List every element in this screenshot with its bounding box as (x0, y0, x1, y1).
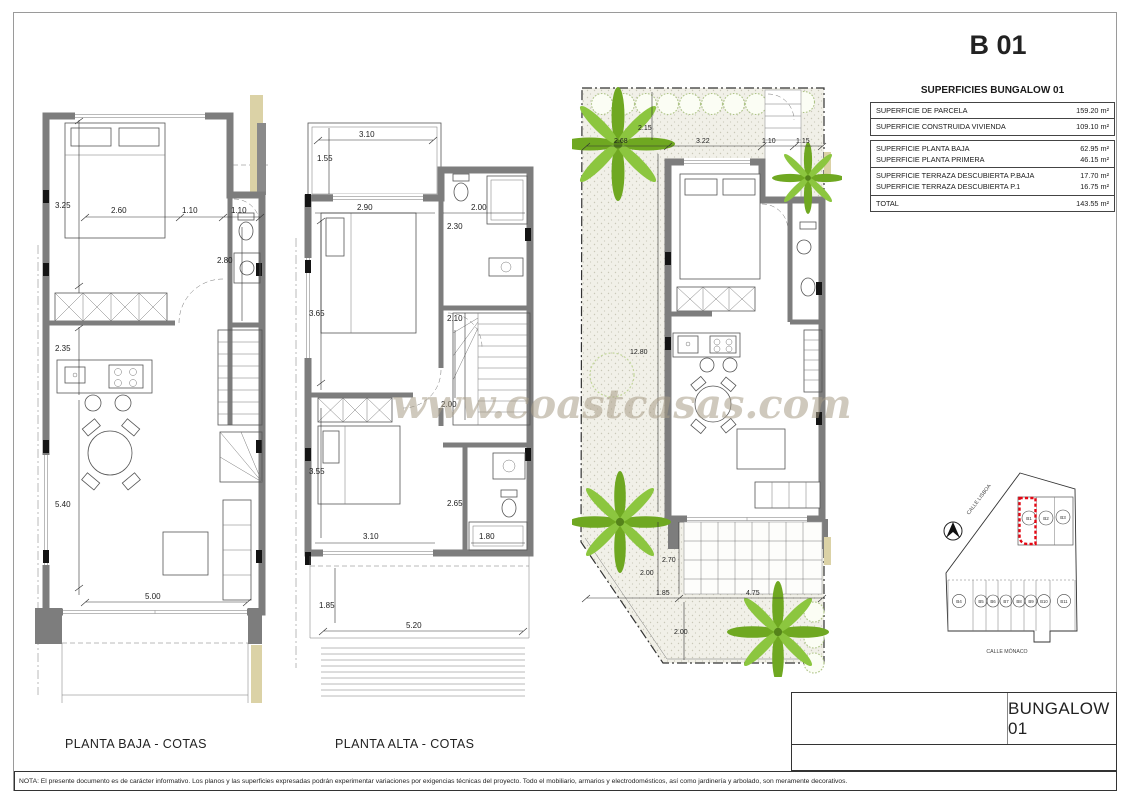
dim-label: 2.65 (447, 499, 463, 508)
dim-label: 1.10 (182, 206, 198, 215)
dim-label: 3.25 (55, 201, 71, 210)
row-value: 62.95 m² (1080, 143, 1109, 154)
lot-label: B10 (1040, 599, 1048, 604)
lot-label: B8 (1016, 599, 1022, 604)
pergola-louvres (321, 648, 525, 696)
dim-label: 2.35 (55, 344, 71, 353)
lot-label: B1 (1026, 516, 1032, 521)
row-label: SUPERFICIE PLANTA PRIMERA (876, 154, 985, 165)
table-row: SUPERFICIE CONSTRUIDA VIVIENDA109.10 m² (870, 118, 1115, 135)
dim-label: 1.85 (319, 601, 335, 610)
dim-label: 5.00 (145, 592, 161, 601)
table-row-group: SUPERFICIE TERRAZA DESCUBIERTA P.BAJA17.… (870, 167, 1115, 196)
site-key-plan: CALLE LISBOA B1 B2 B3 B4 (933, 443, 1118, 678)
row-value: 143.55 m² (1076, 198, 1109, 209)
drawing-sheet: 3.25 2.60 1.10 1.10 2.80 2.35 5.40 5.00 … (0, 0, 1131, 800)
plan-label-planta-baja: PLANTA BAJA - COTAS (65, 737, 207, 751)
dim-label: 3.10 (359, 130, 375, 139)
dim-label: 5.40 (55, 500, 71, 509)
row-value: 17.70 m² (1080, 170, 1109, 181)
row-value: 16.75 m² (1080, 181, 1109, 192)
floor-plan-planta-baja: 3.25 2.60 1.10 1.10 2.80 2.35 5.40 5.00 (35, 95, 270, 707)
table-row: SUPERFICIE DE PARCELA159.20 m² (870, 102, 1115, 119)
areas-table: SUPERFICIES BUNGALOW 01 SUPERFICIE DE PA… (870, 85, 1115, 212)
dim-label: 2.68 (614, 138, 628, 145)
dim-label: 2.00 (674, 629, 688, 636)
row-value: 159.20 m² (1076, 105, 1109, 116)
dim-label: 2.80 (217, 256, 233, 265)
street-label-top: CALLE LISBOA (966, 483, 993, 516)
areas-table-title: SUPERFICIES BUNGALOW 01 (870, 85, 1115, 96)
lot-label: B9 (1028, 599, 1034, 604)
dim-label: 3.10 (363, 532, 379, 541)
dim-label: 5.20 (406, 621, 422, 630)
row-value: 46.15 m² (1080, 154, 1109, 165)
title-block-logo-cell (792, 693, 1008, 744)
dim-label: 2.00 (471, 203, 487, 212)
dim-label: 1.10 (762, 138, 776, 145)
dim-label: 2.70 (662, 557, 676, 564)
dim-label: 12.80 (630, 349, 648, 356)
site-boundary (946, 473, 1077, 642)
row-value: 109.10 m² (1076, 121, 1109, 132)
dim-label: 3.55 (309, 467, 325, 476)
dim-label: 1.80 (479, 532, 495, 541)
dim-label: 2.60 (111, 206, 127, 215)
dim-label: 3.65 (309, 309, 325, 318)
row-label: SUPERFICIE CONSTRUIDA VIVIENDA (876, 121, 1006, 132)
street-label-bottom: CALLE MÓNACO (986, 648, 1027, 655)
disclaimer-note: NOTA: El presente documento es de caráct… (14, 771, 1117, 791)
bed-2 (318, 426, 400, 504)
lot-label: B11 (1060, 599, 1068, 604)
bed-1 (321, 213, 416, 333)
north-arrow-icon (944, 522, 962, 540)
dim-label: 2.90 (357, 203, 373, 212)
row-label: SUPERFICIE TERRAZA DESCUBIERTA P.1 (876, 181, 1020, 192)
sheet-code: B 01 (938, 30, 1058, 61)
bed (65, 123, 165, 238)
row-label: SUPERFICIE TERRAZA DESCUBIERTA P.BAJA (876, 170, 1034, 181)
dim-label: 1.15 (796, 138, 810, 145)
terrace-tiles (668, 519, 828, 594)
table-row-total: TOTAL143.55 m² (870, 195, 1115, 212)
bed (680, 174, 760, 279)
neighbour-wall (824, 537, 831, 565)
table-row-group: SUPERFICIE PLANTA BAJA62.95 m² SUPERFICI… (870, 140, 1115, 169)
dim-label: 4.75 (746, 590, 760, 597)
row-label: SUPERFICIE DE PARCELA (876, 105, 968, 116)
dim-label: 2.10 (447, 314, 463, 323)
sofa (223, 500, 251, 600)
title-block: BUNGALOW 01 (791, 692, 1117, 771)
lot-label: B4 (956, 599, 962, 604)
lot-label: B7 (1003, 599, 1009, 604)
row-label: TOTAL (876, 198, 899, 209)
lot-label: B3 (1060, 515, 1066, 520)
plan-label-planta-alta: PLANTA ALTA - COTAS (335, 737, 474, 751)
floor-plan-planta-alta: 3.10 1.55 2.90 2.00 2.30 3.65 2.10 2.00 … (293, 108, 543, 736)
lot-label: B5 (978, 599, 984, 604)
dim-label: 1.85 (656, 590, 670, 597)
row-label: SUPERFICIE PLANTA BAJA (876, 143, 970, 154)
dim-label: 3.22 (696, 138, 710, 145)
dim-label: 1.10 (231, 206, 247, 215)
lot-label: B2 (1043, 516, 1049, 521)
project-name: BUNGALOW 01 (1008, 693, 1116, 744)
dim-label: 2.00 (640, 570, 654, 577)
plot-plan: 2.15 2.68 3.22 1.10 1.15 12.80 2.70 2.00… (572, 82, 842, 677)
dim-label: 2.30 (447, 222, 463, 231)
dim-label: 2.15 (638, 125, 652, 132)
terrace (35, 608, 262, 703)
sofa (755, 482, 820, 508)
dim-label: 1.55 (317, 154, 333, 163)
dim-label: 2.00 (441, 400, 457, 409)
lot-label: B6 (990, 599, 996, 604)
